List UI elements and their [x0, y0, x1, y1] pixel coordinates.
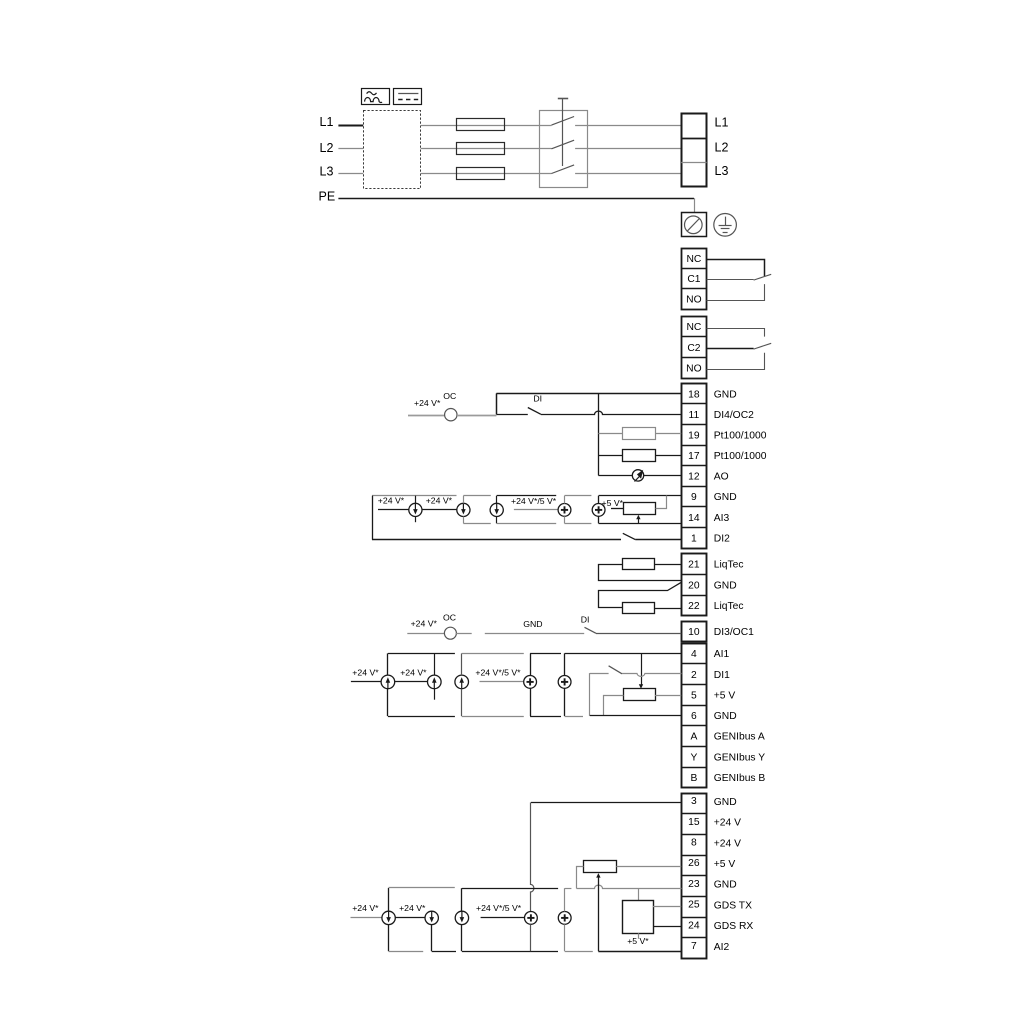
svg-text:LiqTec: LiqTec: [714, 601, 744, 612]
svg-text:Pt100/1000: Pt100/1000: [714, 430, 767, 441]
svg-text:AI1: AI1: [714, 649, 730, 660]
svg-text:GND: GND: [523, 619, 542, 629]
svg-text:+24 V*: +24 V*: [411, 619, 438, 629]
svg-text:OC: OC: [443, 613, 456, 623]
svg-text:LiqTec: LiqTec: [714, 560, 744, 571]
svg-text:1: 1: [691, 533, 697, 544]
svg-text:+24 V: +24 V: [714, 838, 741, 849]
svg-text:NO: NO: [686, 295, 701, 306]
svg-text:+24 V*/5 V*: +24 V*/5 V*: [511, 496, 557, 506]
svg-text:PE: PE: [319, 190, 336, 204]
svg-text:2: 2: [691, 670, 697, 681]
svg-text:DI2: DI2: [714, 533, 730, 544]
svg-text:+24 V*: +24 V*: [352, 903, 379, 913]
svg-text:OC: OC: [443, 391, 456, 401]
svg-text:23: 23: [688, 879, 700, 890]
svg-text:NC: NC: [686, 322, 701, 333]
svg-text:+5 V*: +5 V*: [627, 936, 649, 946]
svg-text:22: 22: [688, 601, 700, 612]
svg-text:+24 V*: +24 V*: [414, 398, 441, 408]
svg-text:GND: GND: [714, 492, 737, 503]
svg-text:AI3: AI3: [714, 513, 730, 524]
svg-text:L2: L2: [320, 141, 334, 155]
svg-text:7: 7: [691, 941, 697, 952]
svg-text:C1: C1: [687, 274, 700, 285]
svg-text:3: 3: [691, 796, 697, 807]
svg-text:24: 24: [688, 920, 700, 931]
svg-text:AO: AO: [714, 472, 729, 483]
svg-text:NC: NC: [686, 254, 701, 265]
svg-text:+5 V: +5 V: [714, 859, 736, 870]
svg-text:+24 V: +24 V: [714, 818, 741, 829]
svg-text:+24 V*: +24 V*: [426, 495, 453, 505]
svg-text:L1: L1: [715, 116, 729, 130]
svg-text:B: B: [690, 773, 697, 784]
svg-text:DI: DI: [533, 393, 542, 403]
svg-text:DI3/OC1: DI3/OC1: [714, 627, 754, 638]
svg-text:Pt100/1000: Pt100/1000: [714, 451, 767, 462]
svg-text:+5 V*: +5 V*: [602, 498, 624, 508]
svg-text:AI2: AI2: [714, 942, 730, 953]
svg-text:12: 12: [688, 472, 700, 483]
svg-text:NO: NO: [686, 364, 701, 375]
svg-text:25: 25: [688, 900, 700, 911]
svg-text:GENIbus Y: GENIbus Y: [714, 752, 765, 763]
svg-text:6: 6: [691, 711, 697, 722]
svg-text:26: 26: [688, 858, 700, 869]
svg-text:L3: L3: [320, 165, 334, 179]
svg-text:GENIbus B: GENIbus B: [714, 773, 766, 784]
svg-text:14: 14: [688, 513, 700, 524]
svg-text:L2: L2: [715, 141, 729, 155]
svg-text:GENIbus A: GENIbus A: [714, 732, 765, 743]
svg-text:GND: GND: [714, 389, 737, 400]
svg-text:20: 20: [688, 580, 700, 591]
svg-text:+24 V*: +24 V*: [352, 668, 379, 678]
svg-text:+24 V*: +24 V*: [400, 668, 427, 678]
svg-text:19: 19: [688, 430, 700, 441]
svg-text:GND: GND: [714, 797, 737, 808]
svg-text:L3: L3: [715, 164, 729, 178]
svg-text:11: 11: [689, 410, 700, 421]
svg-text:Y: Y: [690, 752, 697, 763]
svg-text:+24 V*: +24 V*: [399, 903, 426, 913]
svg-text:GND: GND: [714, 711, 737, 722]
svg-text:A: A: [690, 732, 697, 743]
svg-text:+24 V*/5 V*: +24 V*/5 V*: [475, 668, 521, 678]
svg-text:+24 V*/5 V*: +24 V*/5 V*: [476, 903, 522, 913]
svg-text:8: 8: [691, 838, 697, 849]
svg-text:5: 5: [691, 690, 697, 701]
svg-text:GDS TX: GDS TX: [714, 900, 752, 911]
svg-text:10: 10: [688, 627, 700, 638]
svg-text:GDS RX: GDS RX: [714, 921, 754, 932]
svg-text:DI: DI: [581, 615, 590, 625]
svg-text:17: 17: [688, 451, 700, 462]
svg-text:DI4/OC2: DI4/OC2: [714, 410, 754, 421]
svg-text:GND: GND: [714, 580, 737, 591]
svg-text:21: 21: [688, 560, 700, 571]
svg-text:18: 18: [688, 389, 700, 400]
svg-text:9: 9: [691, 492, 697, 503]
svg-text:4: 4: [691, 649, 697, 660]
svg-text:C2: C2: [687, 343, 700, 354]
svg-text:15: 15: [688, 817, 700, 828]
svg-text:+24 V*: +24 V*: [378, 495, 405, 505]
svg-text:L1: L1: [320, 115, 334, 129]
svg-text:+5 V: +5 V: [714, 690, 736, 701]
svg-text:DI1: DI1: [714, 670, 730, 681]
svg-text:GND: GND: [714, 880, 737, 891]
